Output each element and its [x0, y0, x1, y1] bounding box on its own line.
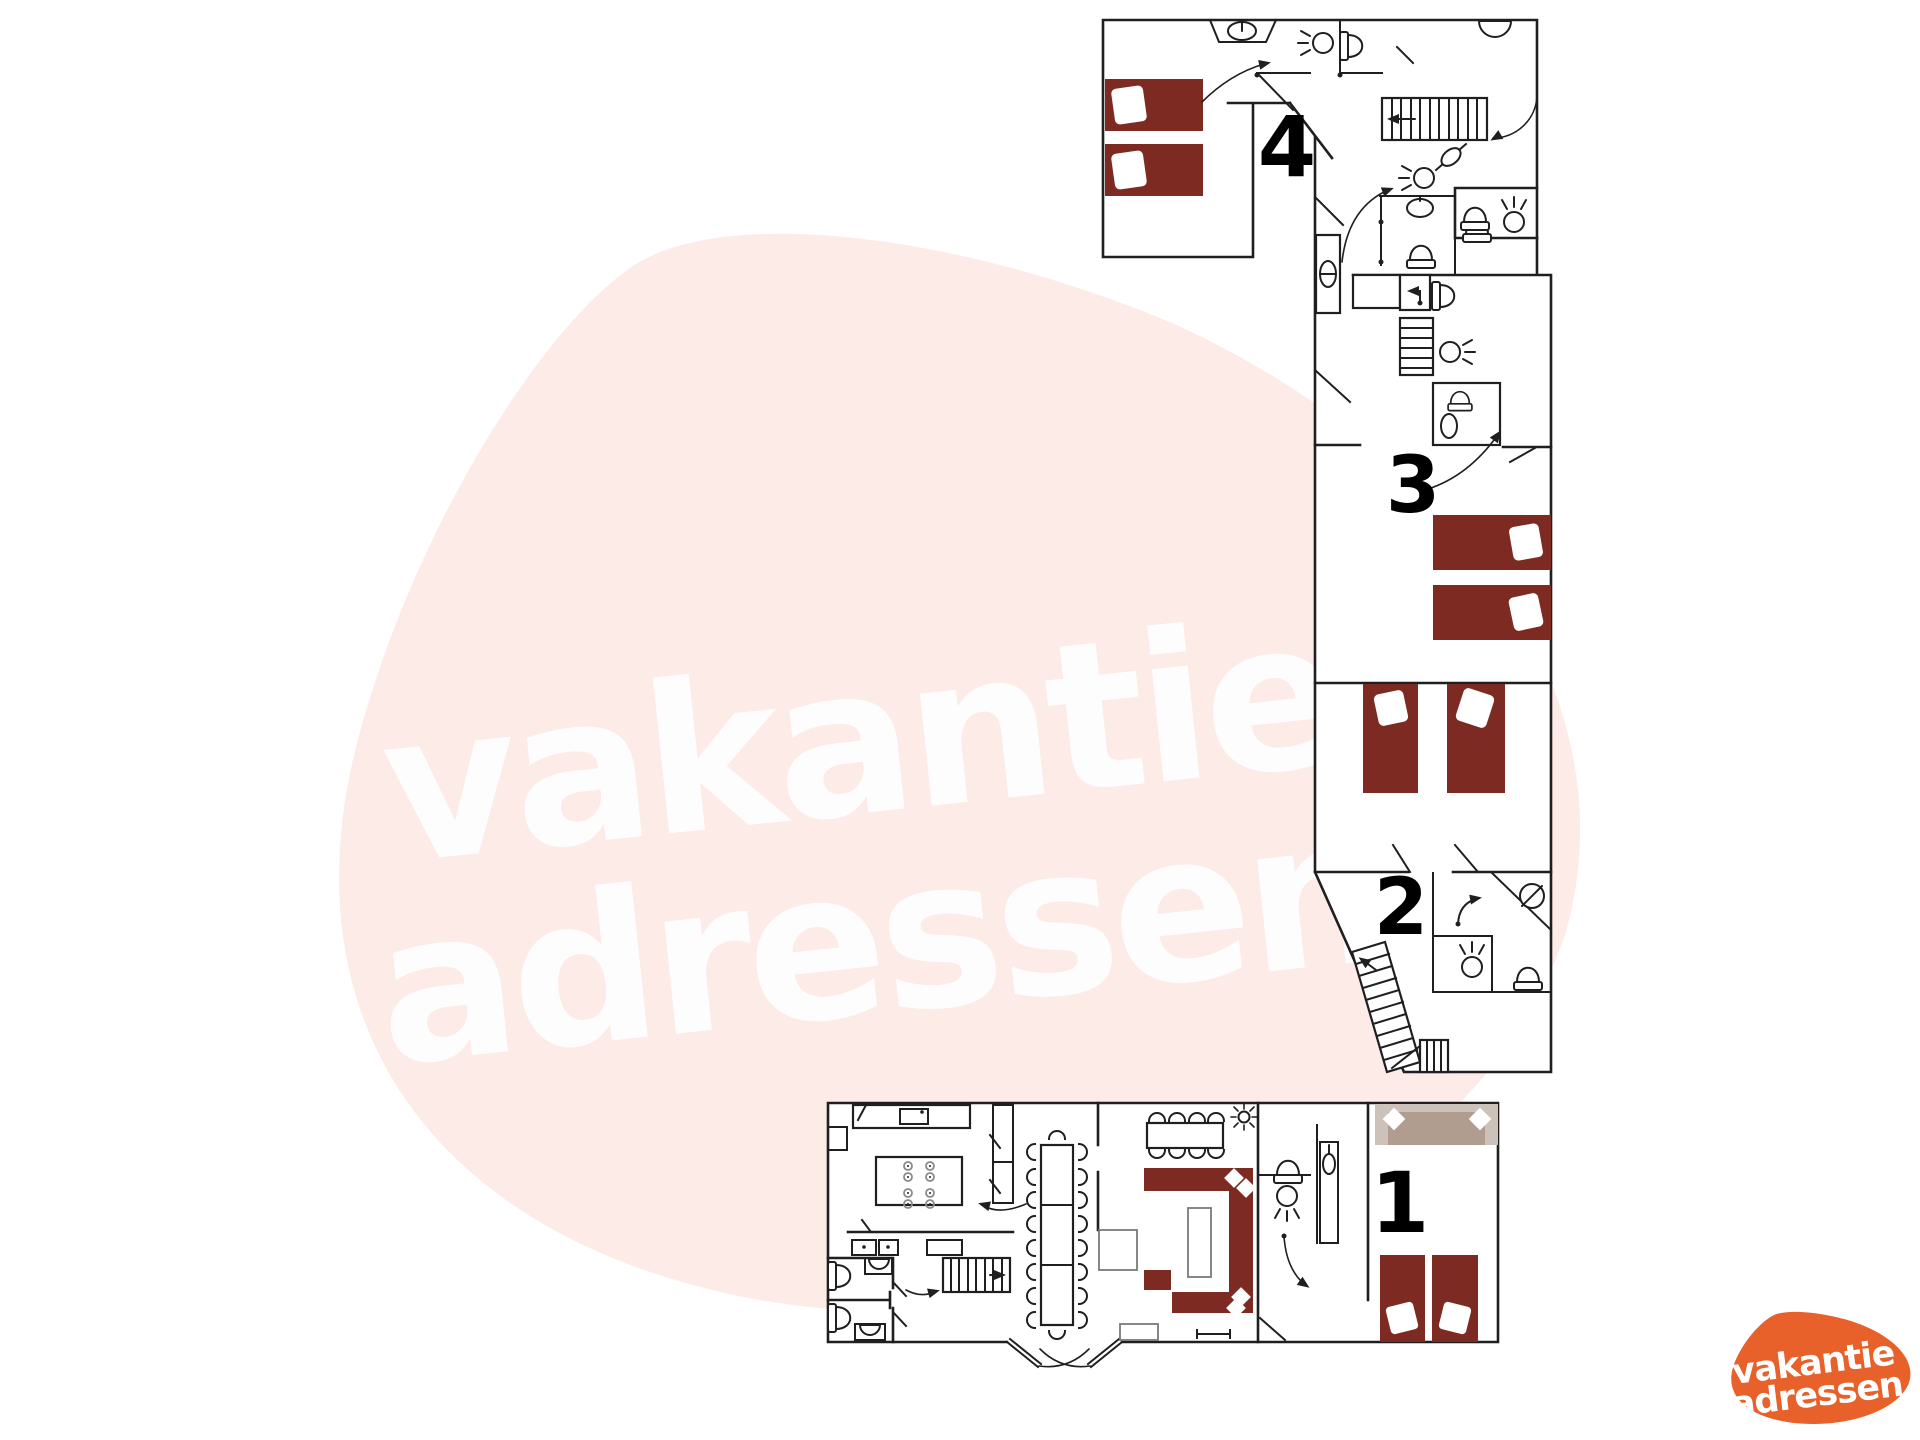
sink-icon [1323, 1154, 1335, 1174]
stairs-icon [1400, 318, 1433, 375]
stairs-icon [1382, 98, 1487, 140]
brand-logo: vakantie adressen [1726, 1312, 1911, 1425]
stairs-icon [943, 1258, 1010, 1292]
floor-2-label: 2 [1374, 863, 1428, 953]
floor-1-label: 1 [1371, 1154, 1429, 1252]
bath [1353, 275, 1400, 308]
floor-4-label: 4 [1258, 98, 1316, 196]
entrance-doors [1007, 1339, 1122, 1367]
sideboard [1120, 1324, 1158, 1340]
floorplan-canvas: vakantie adressen [0, 0, 1920, 1440]
floorplan-image: vakantie adressen [0, 0, 1920, 1440]
pillow [1111, 150, 1148, 190]
sink-icon [1441, 414, 1457, 438]
coffee-table [1188, 1208, 1211, 1277]
ottoman [1144, 1270, 1171, 1290]
pillow [1111, 85, 1148, 125]
cabinet [1099, 1230, 1137, 1270]
kitchen-island [876, 1157, 962, 1205]
pillow [1508, 523, 1543, 562]
floor-3-label: 3 [1386, 441, 1440, 531]
